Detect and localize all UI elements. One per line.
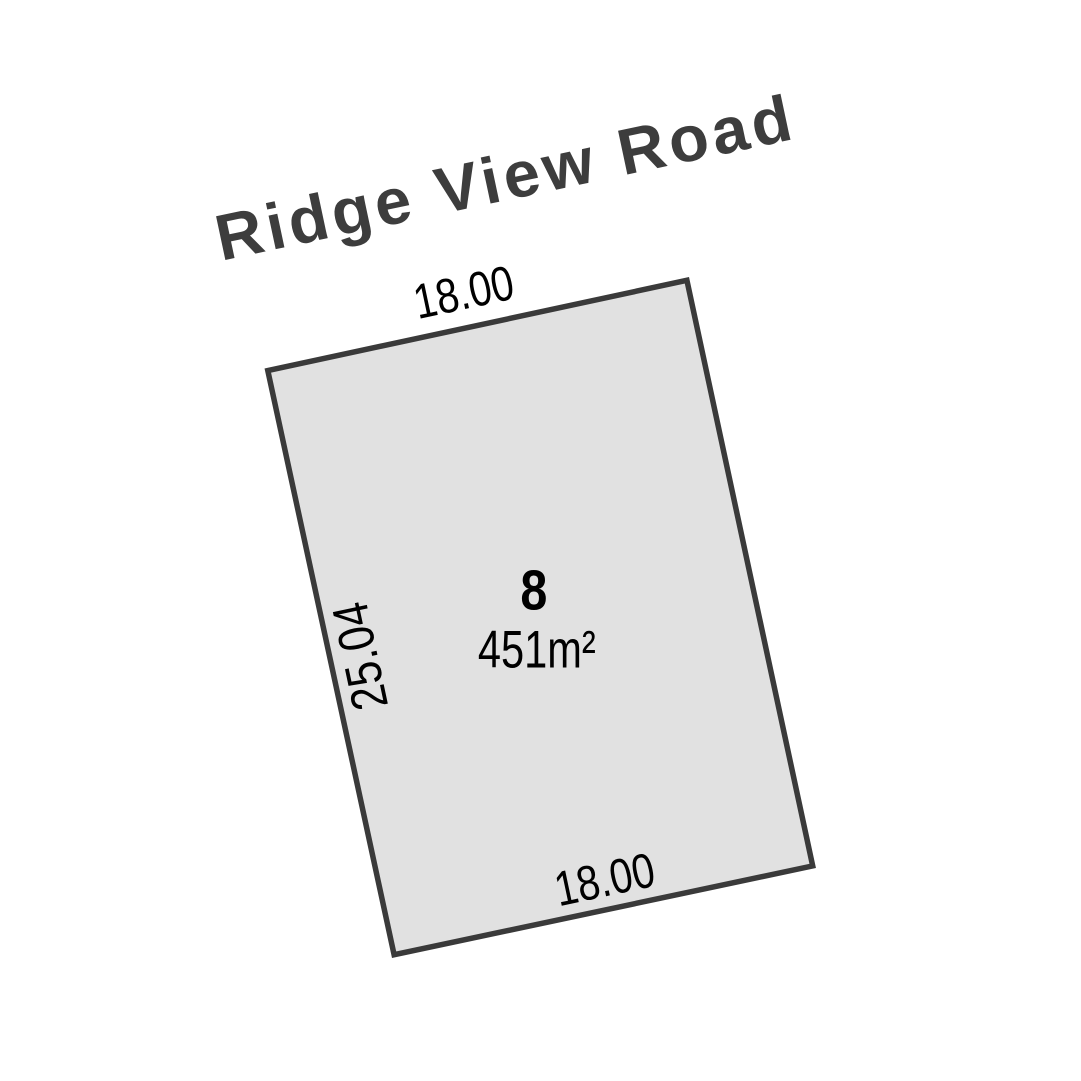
svg-text:8: 8	[520, 559, 547, 623]
svg-text:451m²: 451m²	[478, 621, 596, 680]
